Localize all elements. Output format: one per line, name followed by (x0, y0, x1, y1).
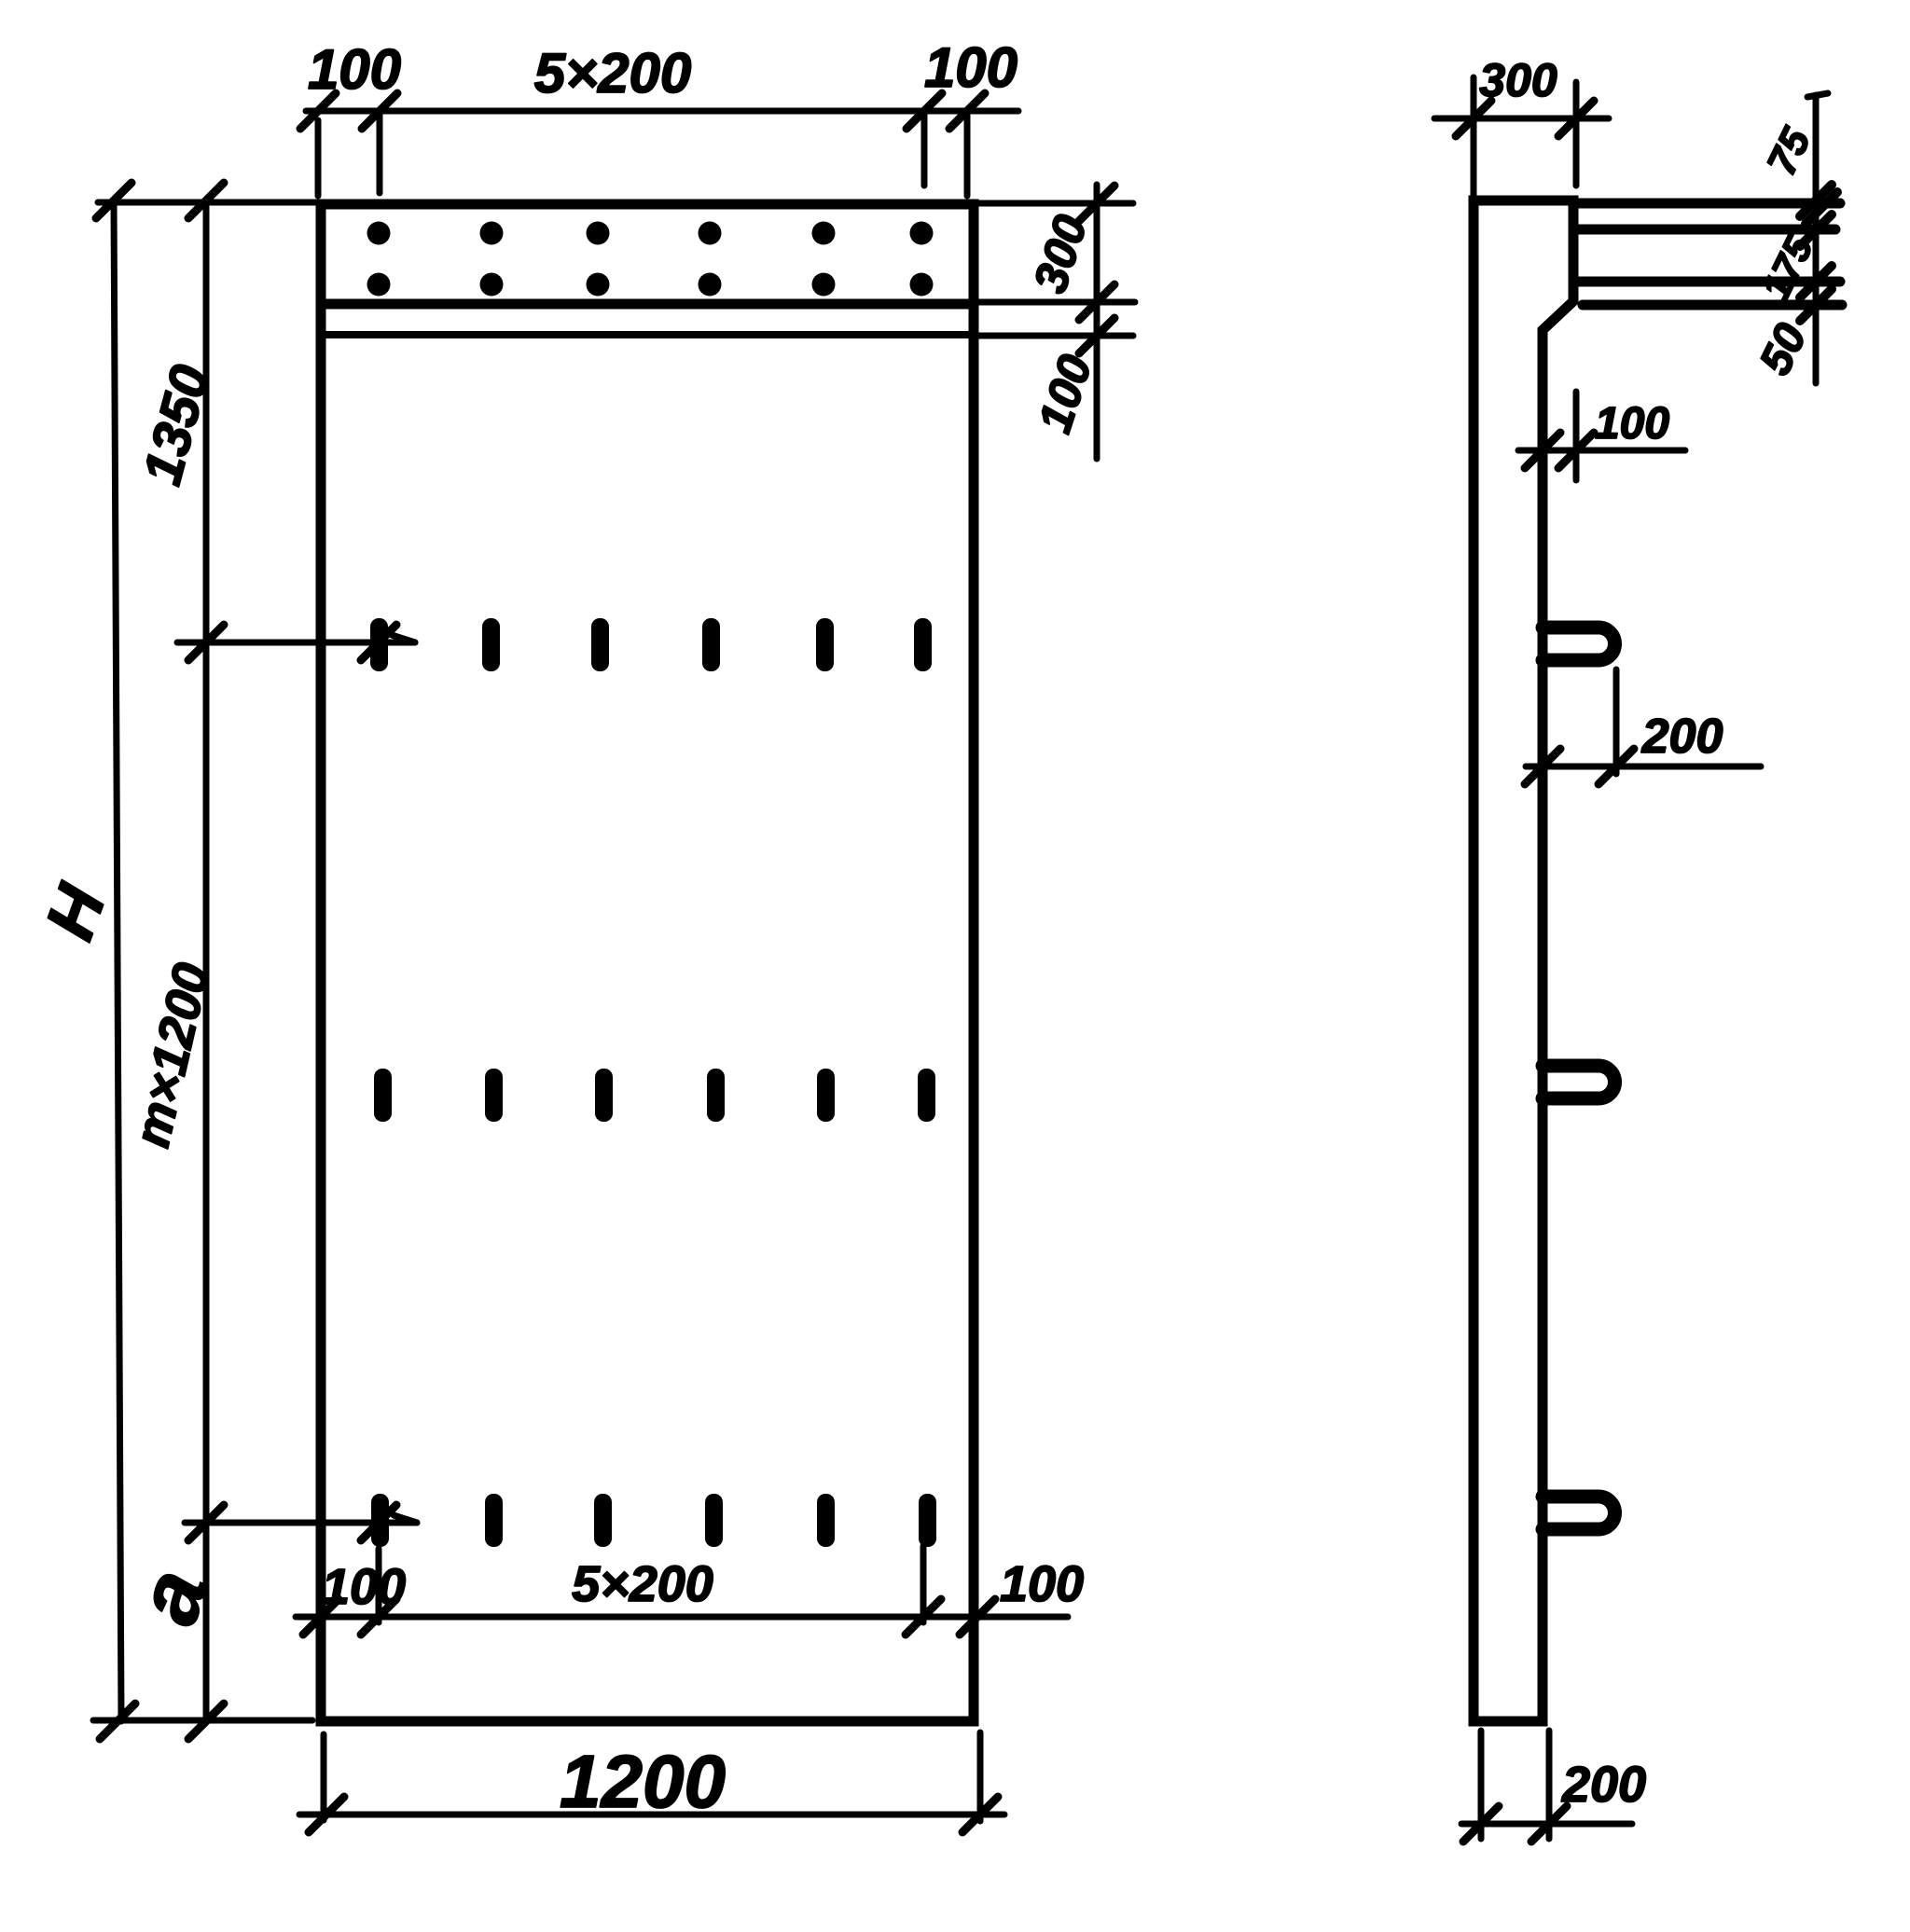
svg-text:300: 300 (1479, 54, 1557, 106)
svg-text:100: 100 (924, 36, 1017, 99)
svg-text:a: a (118, 1558, 227, 1635)
svg-text:100: 100 (1000, 1556, 1084, 1612)
svg-text:300: 300 (1023, 209, 1097, 299)
svg-text:50: 50 (1751, 316, 1817, 382)
svg-text:100: 100 (308, 38, 401, 101)
svg-text:5×200: 5×200 (534, 42, 692, 104)
svg-text:100: 100 (1595, 399, 1669, 448)
svg-text:H: H (30, 875, 120, 949)
svg-text:75: 75 (1759, 120, 1820, 182)
svg-text:200: 200 (1561, 1757, 1646, 1813)
svg-text:100: 100 (322, 1559, 406, 1615)
svg-text:200: 200 (1641, 710, 1723, 764)
svg-text:100: 100 (1028, 349, 1101, 439)
svg-text:1200: 1200 (560, 1740, 726, 1823)
svg-text:5×200: 5×200 (572, 1556, 713, 1612)
